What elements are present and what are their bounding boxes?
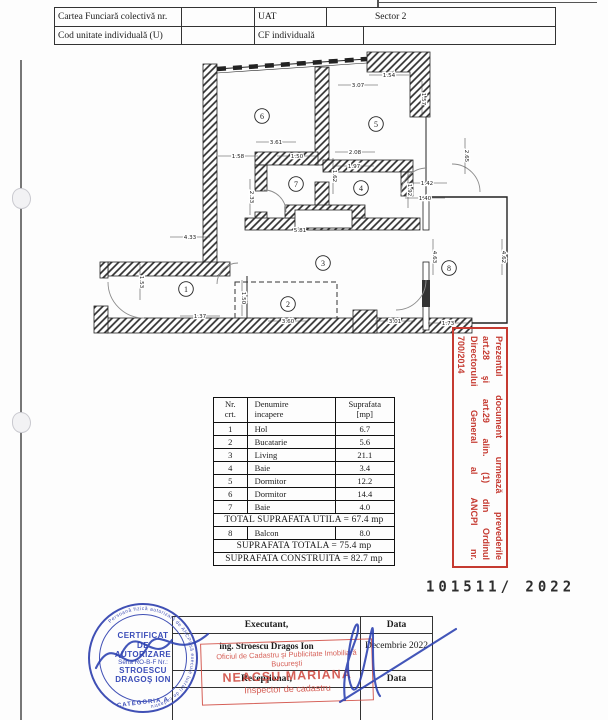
dimension-label: 3.60 [282,319,295,325]
table-cell: 3.4 [335,461,395,474]
table-cell: Baie [247,500,335,513]
uat-label: UAT [254,7,327,26]
table-cell: 2 [214,435,248,448]
room-number: 2 [286,300,290,309]
stamp-line: STROESCU [119,666,167,675]
table-cell: 8 [214,526,248,539]
table-cell: Bucatarie [247,435,335,448]
dimension-label: 4.33 [184,235,197,241]
table-row: 2Bucatarie5.6 [214,435,395,448]
dimension-label: 1.50 [240,292,246,305]
dimension-label: 1.42 [421,181,433,187]
dimension-label: 1.92 [406,184,412,196]
page-left-border [20,60,22,720]
table-cell: TOTAL SUPRAFATA UTILA = 67.4 mp [214,513,395,526]
dimension-label: 4.62 [500,251,506,263]
table-row: 4Baie3.4 [214,461,395,474]
ancpi-order-stamp: Prezentul document urmează prevederile a… [452,327,508,568]
authorization-round-stamp: Persoană fizică autorizată de ANCPI să e… [88,603,198,713]
header-row: Cartea Funciară colectivă nr. UAT Sector… [55,7,558,26]
dimension-label: 1.62 [331,170,337,182]
room-number: 3 [321,259,325,268]
stamp-line: Prezentul document urmează prevederile [493,336,506,560]
scanned-cadastral-document: Cartea Funciară colectivă nr. UAT Sector… [0,0,608,720]
dimension-label: 2.65 [463,150,469,163]
table-cell: 4.0 [335,500,395,513]
stamp-line: Directorului General al ANCPI nr. [468,336,481,560]
table-cell: 5 [214,474,248,487]
table-cell: Hol [247,422,335,435]
dimension-label: 1.40 [419,196,432,202]
room-number: 4 [359,184,363,193]
dimension-label: 1.37 [194,314,207,320]
punch-hole [12,188,31,209]
stamp-line: AUTORIZARE [115,650,171,659]
stamp-line: art.28 şi art.29 alin. (1) din Ordinul [480,336,493,560]
dimension-label: 4.63 [431,251,437,264]
table-cell: 7 [214,500,248,513]
data-label: Data [360,616,433,633]
table-cell: Dormitor [247,487,335,500]
stamp-line: DRAGOŞ ION [115,675,171,684]
dimension-label: 3.07 [352,83,365,89]
cartea-funciara-label: Cartea Funciară colectivă nr. [54,7,182,26]
table-row: 7Baie4.0 [214,500,395,513]
dimension-label: 2.08 [349,150,362,156]
dimension-label: 1.57 [420,93,426,106]
table-cell: 6 [214,487,248,500]
table-row: SUPRAFATA TOTALA = 75.4 mp [214,539,395,552]
table-cell: 5.6 [335,435,395,448]
room-number: 5 [374,120,378,129]
table-cell: 6.7 [335,422,395,435]
table-row: 6Dormitor14.4 [214,487,395,500]
floor-plan: 3.613.071.541.571.581.502.081.972.331.62… [90,42,515,344]
areas-header-sup: Suprafata [mp] [335,398,395,423]
areas-table: Nr. crt. Denumire incapere Suprafata [mp… [213,397,395,566]
table-cell: 4 [214,461,248,474]
header-table: Cartea Funciară colectivă nr. UAT Sector… [55,7,558,45]
table-row: 1Hol6.7 [214,422,395,435]
dimension-label: 3.61 [270,140,283,146]
table-cell: 3 [214,448,248,461]
dimension-label: 1.97 [348,164,361,170]
table-row: 3Living21.1 [214,448,395,461]
stamp-center-text: CERTIFICAT DE AUTORIZARE Seria RO-B-F Nr… [101,616,185,700]
table-row: SUPRAFATA CONSTRUITA = 82.7 mp [214,552,395,565]
stamp-line: CERTIFICAT [118,631,169,640]
dimension-label: 1.50 [291,154,304,160]
areas-header-nr: Nr. crt. [214,398,248,423]
table-cell: SUPRAFATA CONSTRUITA = 82.7 mp [214,552,395,565]
dimension-label: 1.53 [138,276,144,289]
room-number: 1 [184,285,188,294]
ancpi-order-stamp-text: Prezentul document urmează prevederile a… [455,336,505,560]
table-cell: 8.0 [335,526,395,539]
stamp-line: Seria RO-B-F Nr.: [118,659,168,666]
table-cell: 14.4 [335,487,395,500]
dimension-label: 5.81 [294,228,307,234]
table-row: TOTAL SUPRAFATA UTILA = 67.4 mp [214,513,395,526]
dimension-label: 1.58 [232,154,245,160]
table-cell: 21.1 [335,448,395,461]
page-top-border-fragment [377,2,597,3]
document-number: 101511/ 2022 [426,578,575,595]
room-number: 7 [294,180,298,189]
table-cell: 12.2 [335,474,395,487]
cartea-funciara-value [181,7,255,26]
punch-hole [12,412,31,433]
table-cell: SUPRAFATA TOTALA = 75.4 mp [214,539,395,552]
executant-label: Executant, [172,616,361,633]
areas-header-row: Nr. crt. Denumire incapere Suprafata [mp… [214,398,395,423]
table-cell: Balcon [247,526,335,539]
stamp-line: DE [137,641,149,650]
table-cell: Baie [247,461,335,474]
table-cell: Dormitor [247,474,335,487]
table-cell: 1 [214,422,248,435]
room-number: 8 [447,264,451,273]
table-row: 8Balcon8.0 [214,526,395,539]
dimension-label: 3.01 [389,319,402,325]
dimension-label: 2.33 [248,191,254,204]
stamp-line: 700/2014 [455,336,468,560]
uat-value: Sector 2 [326,7,556,26]
signature-header-row: Executant, Data [173,616,434,633]
areas-header-den: Denumire incapere [247,398,335,423]
dimension-label: 1.54 [383,73,396,79]
ocpi-receipt-stamp: Oficiul de Cadastru şi Publicitate Imobi… [200,638,374,705]
table-cell: Living [247,448,335,461]
plan-walls [94,52,472,333]
room-number: 6 [260,112,264,121]
table-row: 5Dormitor12.2 [214,474,395,487]
